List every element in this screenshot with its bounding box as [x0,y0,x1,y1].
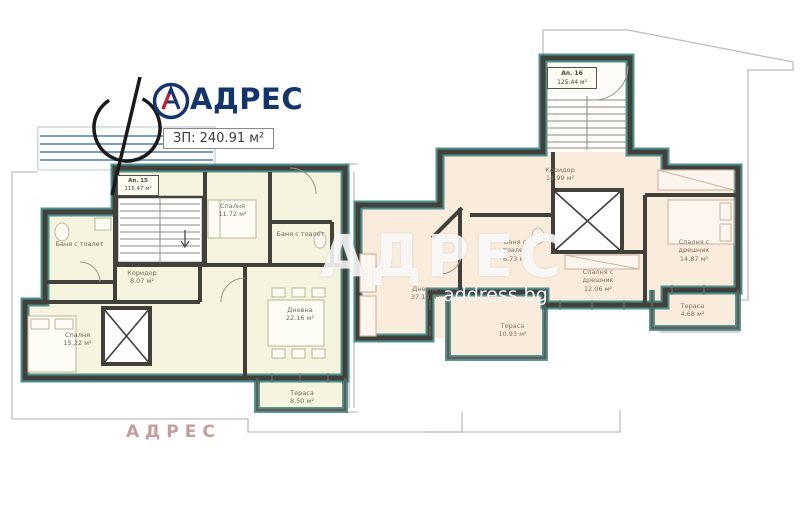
right-unit-area: 125.44 м² [557,79,587,86]
room-label-bedroom-1: Спалня 11.72 м² [205,202,260,219]
circled-a-icon [155,85,188,118]
right-unit-label: Ап. 16 125.44 м² [547,67,597,89]
floor-plan-page: АДРЕС ЗП: 240.91 м² Ап. 15 115.47 м² Ап.… [0,0,800,532]
room-label-bedroom-2: Спалня 15.22 м² [50,331,105,348]
right-unit-number: Ап. 16 [561,70,583,77]
bottom-watermark: АДРЕС [126,422,221,442]
brand-logo-text: АДРЕС [190,82,303,116]
left-stairwell [117,197,203,263]
room-label-terrace-left: Тераса 8.50 м² [272,389,332,406]
left-unit-area: 115.47 м² [124,186,151,192]
total-area-label: ЗП: 240.91 м² [163,128,274,149]
room-label-living-left: Дневна 22.16 м² [270,306,330,323]
room-label-bedroom-4: Спалня с дрешник 14.87 м² [668,238,720,263]
left-unit-number: Ап. 15 [128,178,148,184]
room-label-corridor-right: Коридор 14.99 м² [530,166,590,183]
room-label-bath-1: Баня с тоалет [52,240,107,248]
room-label-terrace-center: Тераса 10.93 м² [485,322,540,339]
room-label-corridor-left: Коридор 8.07 м² [112,269,172,286]
left-elevator-shaft [103,308,150,364]
center-watermark-subtitle: address bg [443,284,548,306]
center-watermark: АДРЕС [320,222,590,290]
room-label-terrace-right: Тераса 4.68 м² [665,302,720,319]
left-unit-label: Ап. 15 115.47 м² [117,175,159,196]
